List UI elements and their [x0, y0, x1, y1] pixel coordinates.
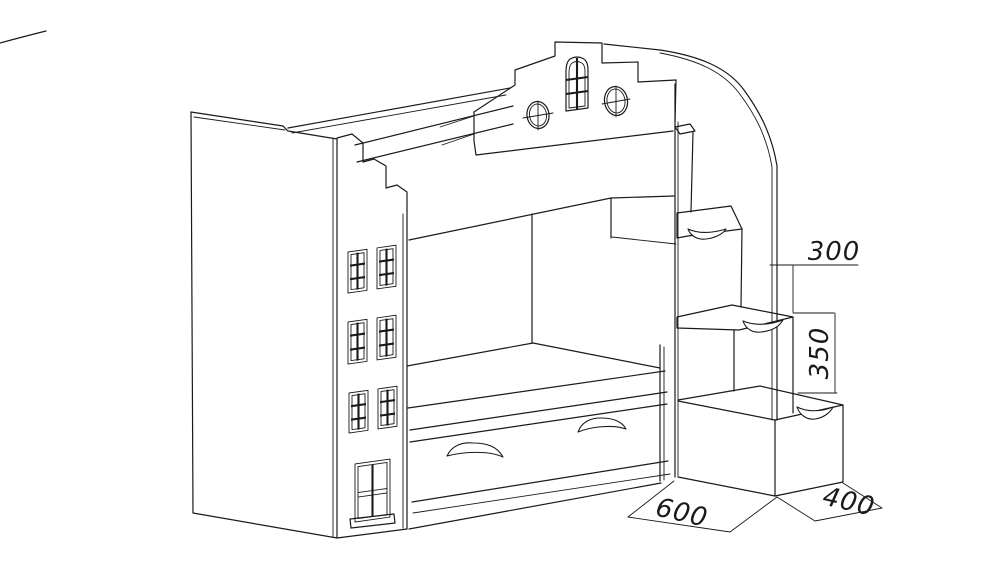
- window-row-3: [349, 386, 397, 433]
- arch-window: [566, 57, 588, 111]
- stair-step-4-handle: [797, 407, 833, 419]
- window-row-2: [348, 315, 396, 364]
- window-row-1: [348, 245, 396, 293]
- door-sill: [350, 514, 395, 528]
- dimension-label-600: 600: [653, 493, 711, 534]
- front-guard-panel: [409, 42, 676, 343]
- lower-bunk: [407, 343, 670, 529]
- bunk-bed-technical-drawing: 300 350 600 400: [0, 0, 989, 580]
- drawer-handle-left: [447, 443, 503, 457]
- stray-line: [0, 31, 46, 43]
- dimension-label-350: 350: [805, 327, 835, 380]
- porthole-window-right: [602, 85, 630, 117]
- stair-step-2-handle: [688, 229, 726, 239]
- door-window: [355, 459, 390, 522]
- dimension-annotations: 300 350 600 400: [628, 237, 882, 534]
- porthole-window-left: [523, 100, 553, 130]
- storage-stairs: [675, 84, 843, 496]
- dimension-label-300: 300: [808, 237, 861, 267]
- left-side-panel: [191, 112, 337, 538]
- drawer-handle-right: [578, 418, 626, 432]
- technical-drawing-page: 300 350 600 400: [0, 0, 989, 580]
- dimension-label-400: 400: [820, 482, 878, 523]
- upper-bunk-rails: [288, 88, 513, 162]
- facade-windows: [348, 245, 397, 528]
